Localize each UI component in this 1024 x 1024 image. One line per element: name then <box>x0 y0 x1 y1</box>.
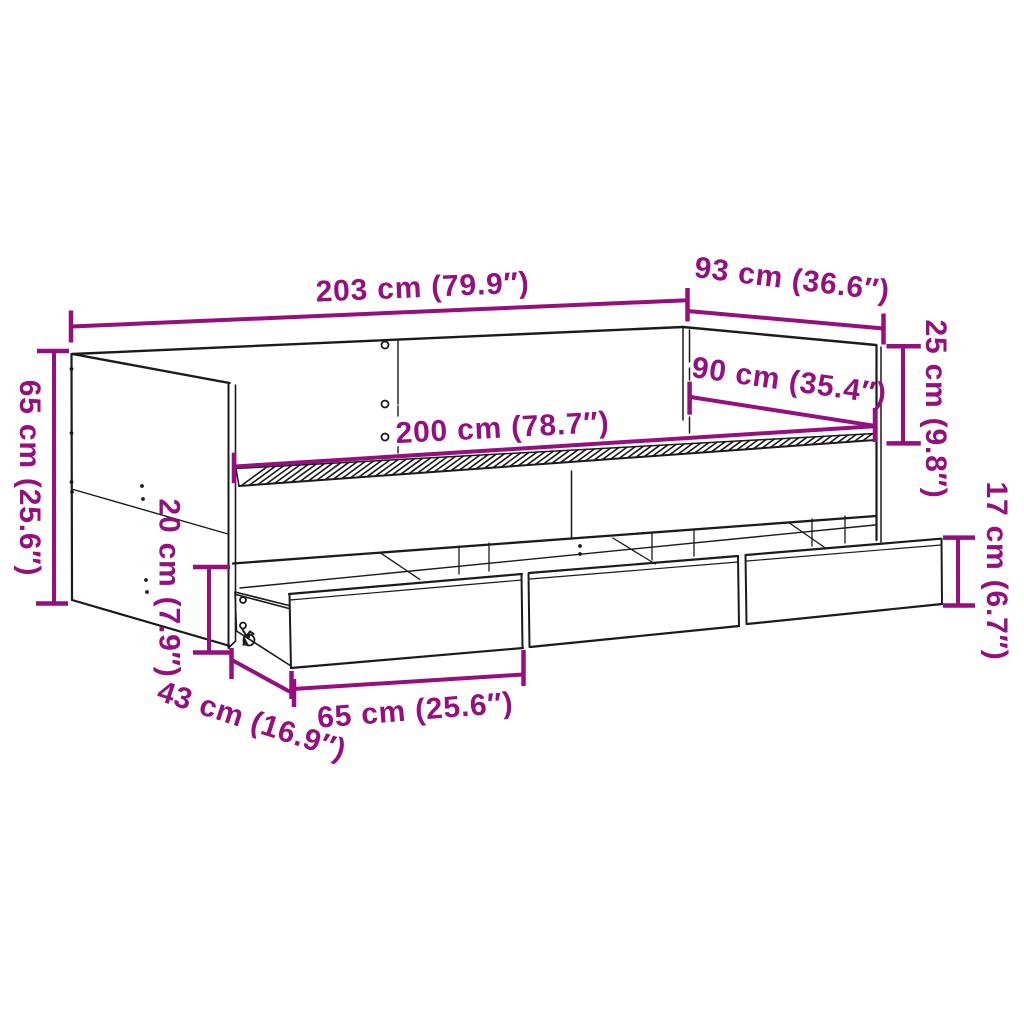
svg-text:65 cm (25.6″): 65 cm (25.6″) <box>13 380 46 577</box>
svg-text:17 cm (6.7″): 17 cm (6.7″) <box>980 481 1013 660</box>
svg-text:25 cm (9.8″): 25 cm (9.8″) <box>919 319 952 498</box>
svg-text:20 cm (7.9″): 20 cm (7.9″) <box>153 498 186 677</box>
